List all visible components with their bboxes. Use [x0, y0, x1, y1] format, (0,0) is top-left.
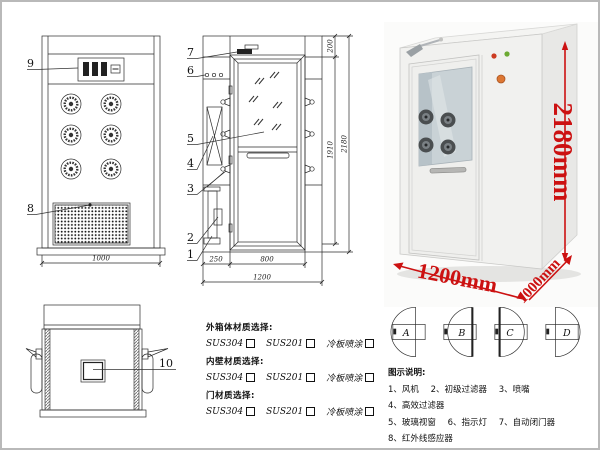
swing-label-b: B — [457, 328, 465, 339]
air-shower-spec-sheet: 9 8 1000 — [0, 0, 600, 450]
door — [229, 55, 305, 250]
callout-6: 6 — [187, 64, 194, 77]
swing-label-c: C — [506, 328, 514, 339]
hinge-mark — [444, 329, 447, 335]
dim-250-label: 250 — [208, 256, 223, 264]
air-nozzles — [61, 94, 121, 179]
option-sus201: SUS201 — [266, 339, 303, 349]
checkbox-door-sus304[interactable] — [246, 407, 255, 416]
legend-row-1: 1、风机 2、初级过滤器 3、喷嘴 4、高效过滤器 — [388, 382, 598, 415]
callout-10: 10 — [159, 357, 173, 370]
legend-row-2: 5、玻璃视窗 6、指示灯 7、自动闭门器 8、红外线感应器 — [388, 415, 598, 448]
callout-1: 1 — [187, 248, 194, 261]
checkbox-door-sus201[interactable] — [306, 407, 315, 416]
checkbox-outer-sus201[interactable] — [306, 339, 315, 348]
legend-item: 6、指示灯 — [448, 418, 487, 428]
door-swing-option-b[interactable]: B — [441, 303, 479, 361]
checkbox-inner-sus201[interactable] — [306, 373, 315, 382]
callout-3: 3 — [187, 182, 194, 195]
checkbox-inner-sus304[interactable] — [246, 373, 255, 382]
hinge-mark — [393, 329, 396, 335]
callout-7: 7 — [187, 46, 194, 59]
indicator-lights — [205, 73, 222, 76]
legend-item: 1、风机 — [388, 385, 419, 395]
green-button — [504, 51, 509, 56]
top-view-drawing: 10 — [26, 296, 196, 431]
material-selection: 外箱体材质选择: SUS304 SUS201 冷板喷涂 内壁材质选择: SUS3… — [206, 316, 382, 420]
door-handle — [247, 153, 289, 158]
inner-wall-material-label: 内壁材质选择: — [206, 355, 382, 367]
callout-2: 2 — [187, 231, 194, 244]
option-coldplate: 冷板喷涂 — [326, 371, 362, 384]
swing-label-d: D — [562, 328, 571, 339]
option-sus201: SUS201 — [266, 373, 303, 383]
callout-5: 5 — [187, 132, 194, 145]
photo-door-handle — [430, 167, 466, 173]
dim-800-label: 800 — [260, 256, 274, 264]
option-coldplate: 冷板喷涂 — [326, 405, 362, 418]
legend-item: 2、初级过滤器 — [431, 385, 487, 395]
filter-box — [207, 107, 222, 165]
legend-title: 图示说明: — [388, 365, 598, 382]
callout-9: 9 — [27, 57, 34, 70]
dim-200-label: 200 — [327, 39, 335, 54]
door-material-label: 门材质选择: — [206, 389, 382, 401]
fan-column — [204, 187, 222, 244]
hinge-mark — [495, 329, 498, 335]
door-section-drawing: 7 6 5 4 3 2 1 200 1910 2180 250 800 1 — [185, 26, 365, 291]
front-view-drawing: 9 8 1000 — [26, 26, 181, 271]
option-sus304: SUS304 — [206, 407, 243, 417]
product-photo: 2180mm 1200mm 1000mm — [384, 22, 598, 307]
legend: 图示说明: 1、风机 2、初级过滤器 3、喷嘴 4、高效过滤器 5、玻璃视窗 6… — [388, 365, 598, 450]
checkbox-door-coldplate[interactable] — [365, 407, 374, 416]
orange-button — [497, 75, 505, 83]
cabinet-door — [409, 55, 479, 260]
door-swing-options: A B C D — [390, 303, 581, 361]
dim-1000-label: 1000 — [92, 255, 110, 263]
swing-label-a: A — [402, 328, 410, 339]
side-nozzles — [221, 98, 314, 173]
callout-4: 4 — [187, 157, 194, 170]
option-sus304: SUS304 — [206, 373, 243, 383]
option-sus201: SUS201 — [266, 407, 303, 417]
option-sus304: SUS304 — [206, 339, 243, 349]
red-button — [491, 53, 496, 58]
callout-8: 8 — [27, 202, 34, 215]
legend-item: 8、红外线感应器 — [388, 434, 453, 444]
door-closer — [237, 45, 258, 54]
dim-1910-label: 1910 — [327, 141, 335, 159]
glass-hatching — [249, 72, 282, 130]
checkbox-inner-coldplate[interactable] — [365, 373, 374, 382]
ceiling-light — [81, 360, 105, 382]
door-swing-option-a[interactable]: A — [390, 303, 428, 361]
legend-item: 3、喷嘴 — [499, 385, 530, 395]
control-panel — [78, 58, 124, 81]
dim-1200-label: 1200 — [253, 274, 271, 282]
dim-height-label: 2180mm — [548, 103, 578, 202]
checkbox-outer-coldplate[interactable] — [365, 339, 374, 348]
door-swing-option-d[interactable]: D — [543, 303, 581, 361]
legend-item: 4、高效过滤器 — [388, 401, 444, 411]
legend-item: 5、玻璃视窗 — [388, 418, 436, 428]
option-coldplate: 冷板喷涂 — [326, 337, 362, 350]
hinge-mark — [546, 329, 549, 335]
door-swing-option-c[interactable]: C — [492, 303, 530, 361]
legend-item: 7、自动闭门器 — [499, 418, 555, 428]
checkbox-outer-sus304[interactable] — [246, 339, 255, 348]
outer-box-material-label: 外箱体材质选择: — [206, 321, 382, 333]
dim-2180-label: 2180 — [341, 135, 349, 154]
